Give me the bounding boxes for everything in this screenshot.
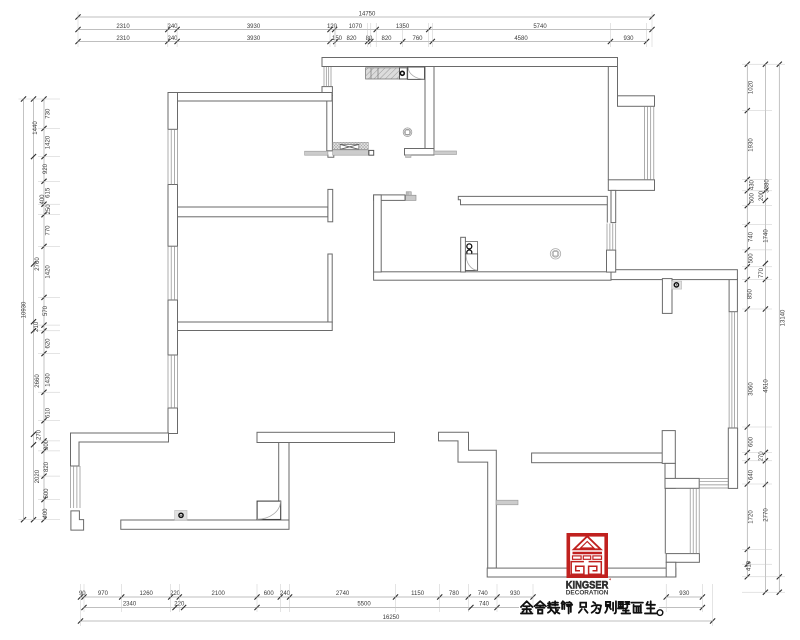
svg-text:240: 240 bbox=[167, 36, 178, 42]
svg-text:1430: 1430 bbox=[46, 373, 52, 387]
svg-text:430: 430 bbox=[750, 179, 756, 190]
svg-text:820: 820 bbox=[346, 36, 357, 42]
svg-text:2770: 2770 bbox=[764, 508, 770, 522]
svg-text:640: 640 bbox=[749, 469, 755, 480]
svg-text:740: 740 bbox=[749, 231, 755, 242]
svg-text:2340: 2340 bbox=[123, 602, 137, 608]
svg-text:2310: 2310 bbox=[116, 36, 130, 42]
svg-text:3930: 3930 bbox=[247, 24, 261, 30]
svg-text:3930: 3930 bbox=[247, 36, 261, 42]
svg-text:620: 620 bbox=[46, 338, 52, 349]
svg-text:1440: 1440 bbox=[33, 121, 39, 135]
svg-text:14750: 14750 bbox=[359, 11, 376, 17]
svg-text:4580: 4580 bbox=[514, 36, 528, 42]
svg-text:400: 400 bbox=[43, 508, 49, 519]
svg-text:615: 615 bbox=[46, 187, 52, 198]
svg-text:930: 930 bbox=[510, 591, 521, 597]
svg-text:1930: 1930 bbox=[749, 138, 755, 152]
svg-text:400: 400 bbox=[40, 194, 46, 205]
svg-text:570: 570 bbox=[43, 305, 49, 316]
svg-text:930: 930 bbox=[623, 36, 634, 42]
svg-text:2740: 2740 bbox=[336, 591, 350, 597]
svg-text:1720: 1720 bbox=[749, 510, 755, 524]
svg-text:600: 600 bbox=[264, 591, 275, 597]
svg-text:410: 410 bbox=[747, 560, 753, 571]
svg-text:DECORATION: DECORATION bbox=[566, 591, 609, 597]
svg-text:2760: 2760 bbox=[35, 257, 41, 271]
svg-text:80: 80 bbox=[366, 36, 373, 42]
svg-text:730: 730 bbox=[46, 108, 52, 119]
svg-text:770: 770 bbox=[46, 225, 52, 236]
svg-text:920: 920 bbox=[43, 163, 49, 174]
svg-text:820: 820 bbox=[44, 461, 50, 472]
svg-text:500: 500 bbox=[749, 253, 755, 264]
svg-text:16250: 16250 bbox=[383, 615, 400, 621]
svg-text:4510: 4510 bbox=[764, 379, 770, 393]
svg-text:220: 220 bbox=[174, 602, 185, 608]
svg-text:250: 250 bbox=[46, 204, 52, 215]
svg-text:1420: 1420 bbox=[46, 265, 52, 279]
svg-text:770: 770 bbox=[759, 267, 765, 278]
svg-text:5500: 5500 bbox=[357, 602, 371, 608]
svg-text:120: 120 bbox=[327, 24, 338, 30]
svg-text:1020: 1020 bbox=[749, 80, 755, 94]
svg-text:500: 500 bbox=[44, 488, 50, 499]
svg-text:780: 780 bbox=[449, 591, 460, 597]
svg-text:240: 240 bbox=[280, 591, 291, 597]
svg-text:2310: 2310 bbox=[116, 24, 130, 30]
svg-text:270: 270 bbox=[37, 429, 43, 440]
svg-text:760: 760 bbox=[412, 36, 423, 42]
svg-text:2100: 2100 bbox=[212, 591, 226, 597]
svg-text:1260: 1260 bbox=[140, 591, 154, 597]
svg-text:930: 930 bbox=[679, 591, 690, 597]
svg-text:200: 200 bbox=[759, 190, 765, 201]
svg-text:740: 740 bbox=[479, 602, 490, 608]
svg-text:1740: 1740 bbox=[764, 229, 770, 243]
svg-text:240: 240 bbox=[167, 24, 178, 30]
svg-text:850: 850 bbox=[748, 289, 754, 300]
svg-text:740: 740 bbox=[478, 591, 489, 597]
svg-text:600: 600 bbox=[749, 436, 755, 447]
svg-text:150: 150 bbox=[332, 36, 343, 42]
svg-text:KINGSER: KINGSER bbox=[566, 579, 609, 591]
svg-text:13140: 13140 bbox=[781, 309, 787, 326]
svg-text:820: 820 bbox=[381, 36, 392, 42]
svg-text:2660: 2660 bbox=[35, 374, 41, 388]
svg-text:5740: 5740 bbox=[533, 24, 547, 30]
svg-text:210: 210 bbox=[34, 321, 40, 332]
svg-text:3060: 3060 bbox=[749, 382, 755, 396]
svg-text:1150: 1150 bbox=[411, 591, 425, 597]
svg-text:10930: 10930 bbox=[22, 301, 28, 318]
svg-text:1070: 1070 bbox=[349, 24, 363, 30]
svg-text:610: 610 bbox=[46, 407, 52, 418]
svg-text:90: 90 bbox=[79, 591, 86, 597]
svg-text:1420: 1420 bbox=[46, 135, 52, 149]
svg-text:500: 500 bbox=[750, 193, 756, 204]
svg-text:970: 970 bbox=[98, 591, 109, 597]
